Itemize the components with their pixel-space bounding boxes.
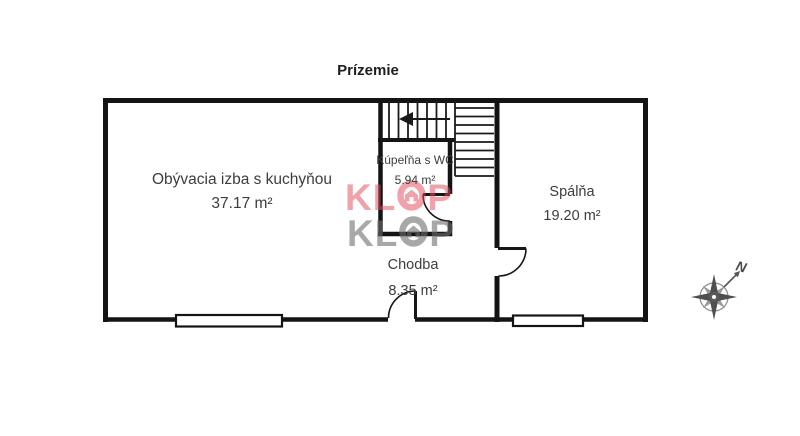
room-area: 8.35 m² [388,278,439,304]
house-icon [399,216,428,253]
room-name: Chodba [388,252,439,278]
bedroom-window [513,316,583,327]
compass-rose: N [691,258,749,320]
room-area: 5.94 m² [376,170,454,190]
north-label: N [734,258,749,276]
room-label-bedroom: Spálňa 19.20 m² [543,180,600,228]
living-room-window [176,315,282,327]
watermark-text-kl: KL [347,215,398,252]
room-area: 37.17 m² [152,192,332,216]
floor-plan-page: N KLP KLP Prízemie Obývacia izba s kuchy… [0,0,800,436]
room-label-bathroom: Kúpeľňa s WC 5.94 m² [376,150,454,190]
stair-arrow-head [399,112,413,126]
page-title: Prízemie [337,62,399,79]
room-name: Kúpeľňa s WC [376,150,454,170]
watermark-gray: KLP [347,215,455,252]
room-area: 19.20 m² [543,204,600,228]
room-name: Obývacia izba s kuchyňou [152,168,332,192]
room-label-living: Obývacia izba s kuchyňou 37.17 m² [152,168,332,216]
bedroom-door-swing [499,249,527,277]
room-label-hallway: Chodba 8.35 m² [388,252,439,304]
compass-hub-center [712,295,716,299]
watermark-text-p: P [429,215,455,252]
room-name: Spálňa [543,180,600,204]
